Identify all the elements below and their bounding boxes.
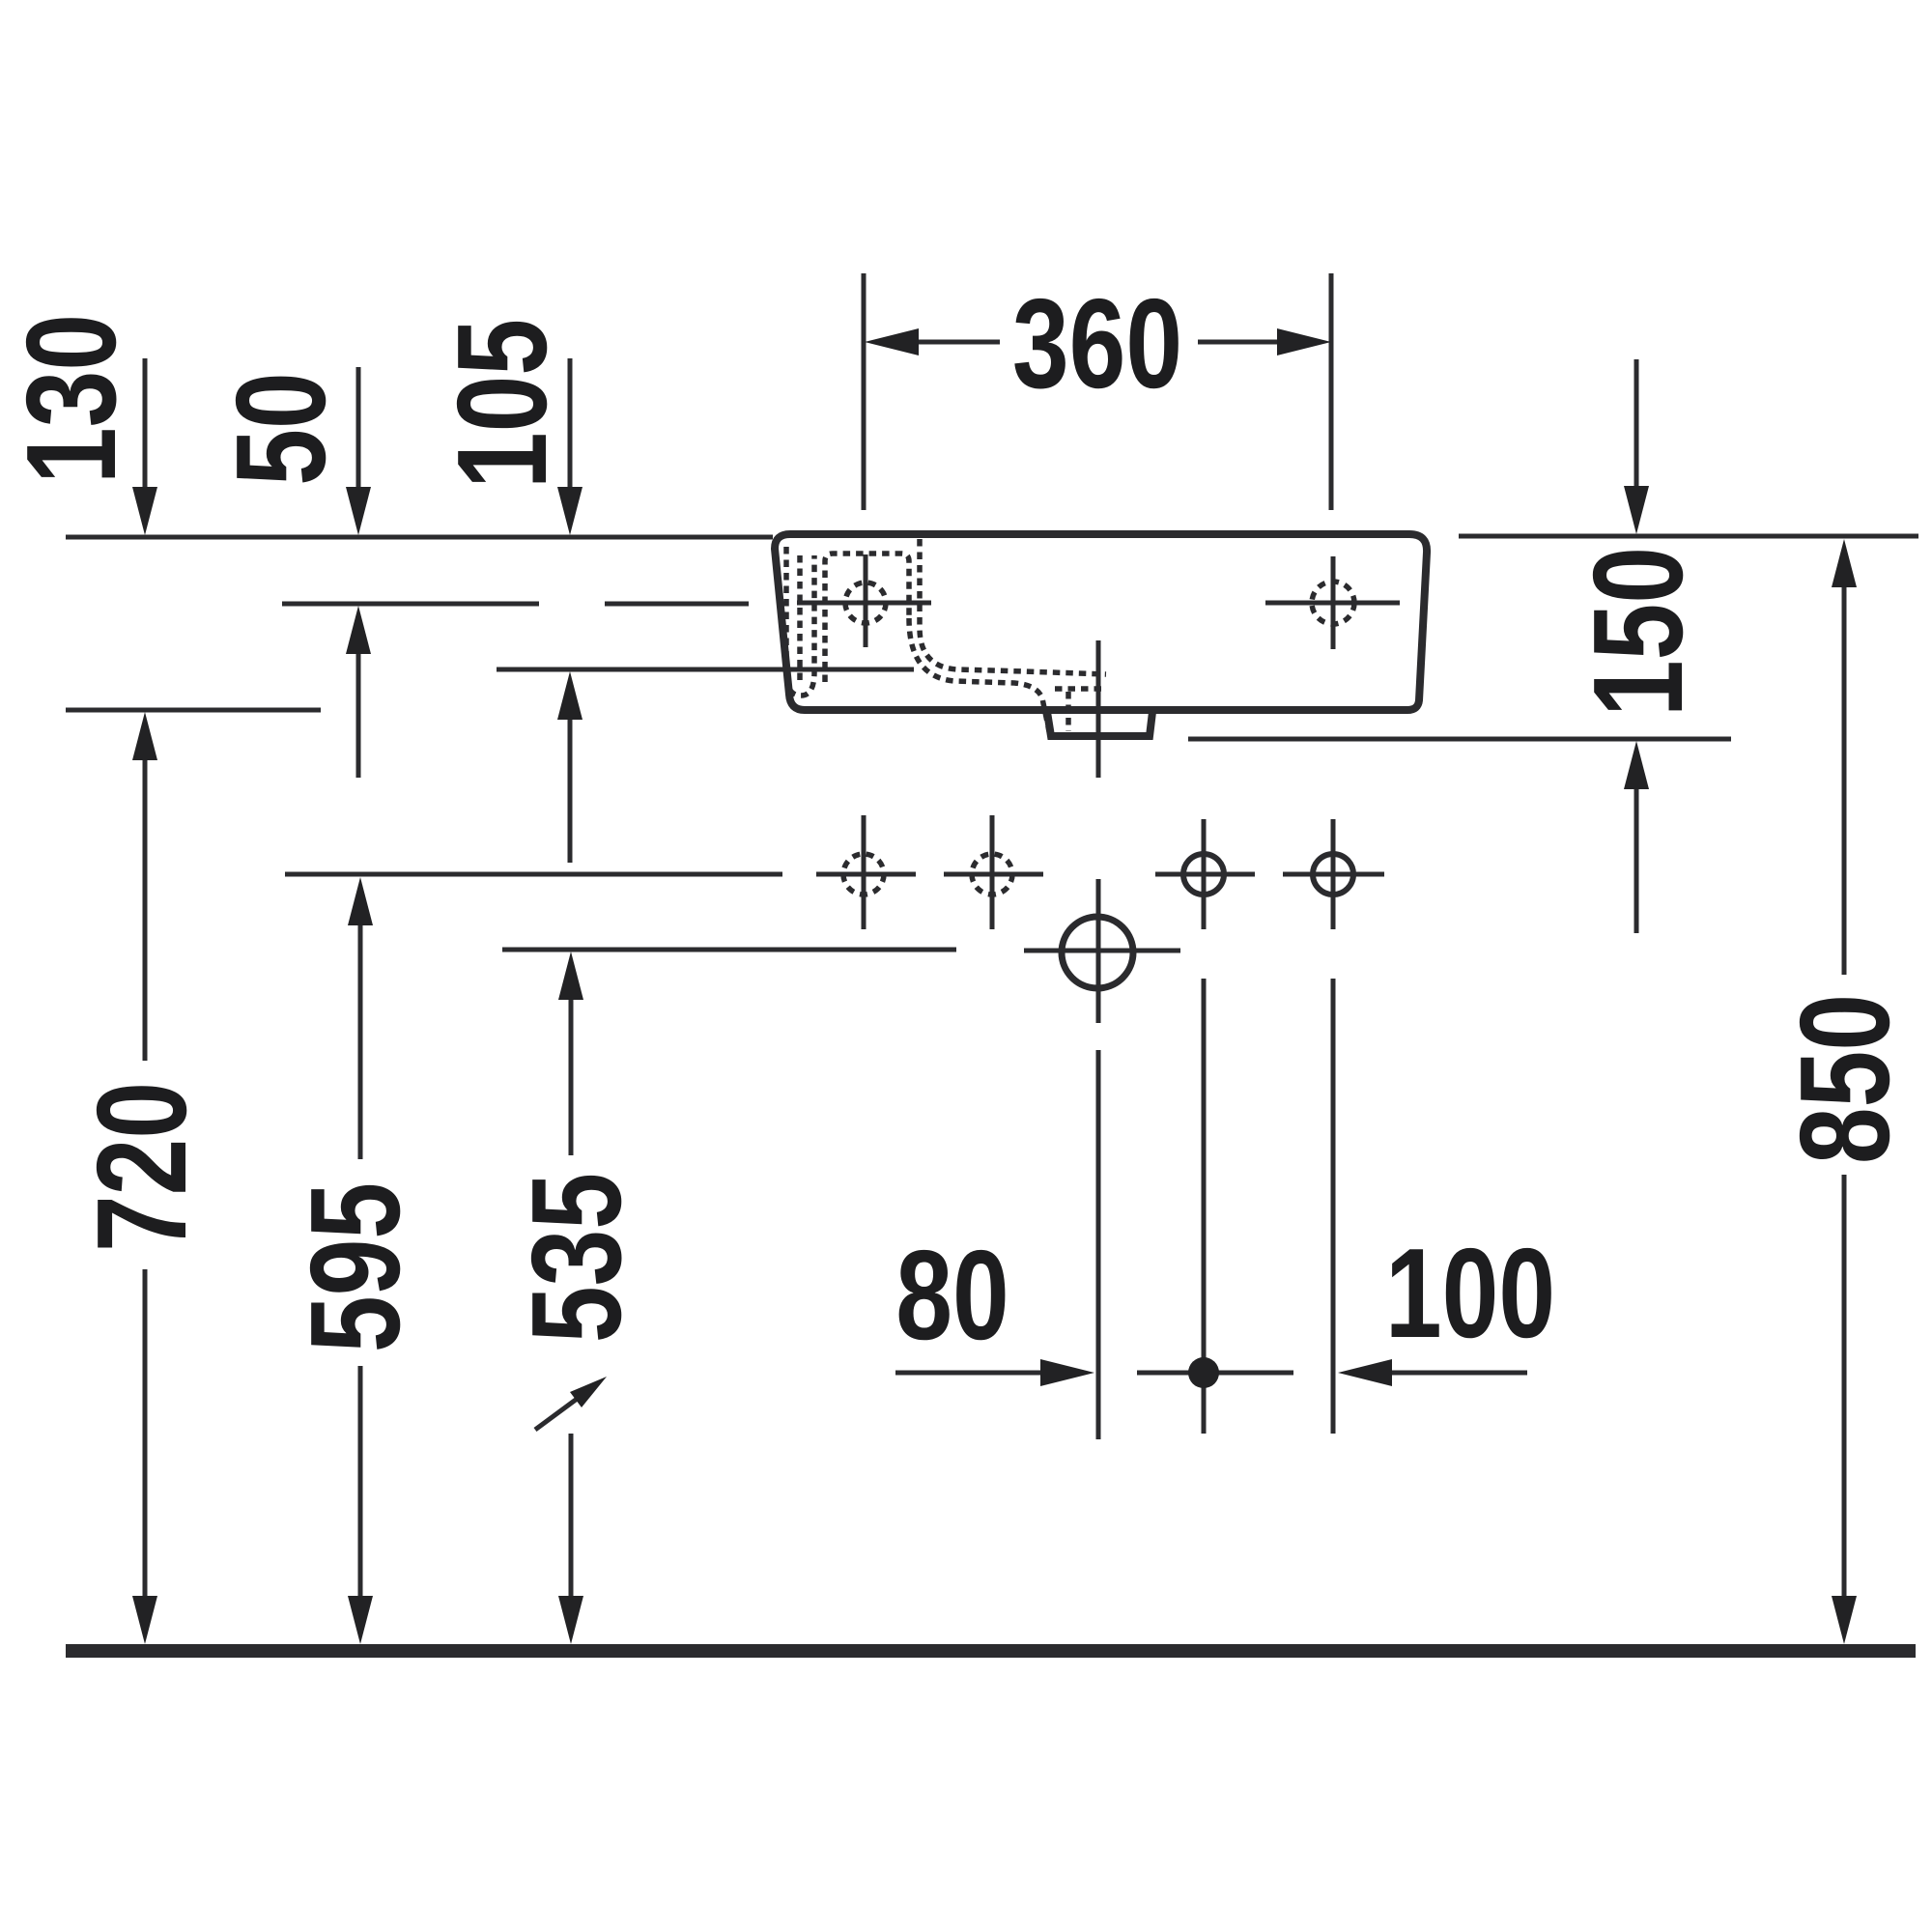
svg-text:535: 535: [506, 1173, 648, 1343]
svg-text:850: 850: [1775, 994, 1917, 1164]
svg-text:100: 100: [1385, 1223, 1555, 1365]
svg-text:105: 105: [432, 319, 574, 489]
svg-text:360: 360: [1012, 273, 1182, 415]
svg-text:720: 720: [71, 1082, 213, 1252]
svg-text:80: 80: [895, 1225, 1009, 1367]
svg-text:150: 150: [1568, 547, 1710, 717]
svg-text:130: 130: [1, 314, 143, 484]
svg-text:50: 50: [211, 372, 353, 485]
svg-text:595: 595: [285, 1182, 427, 1352]
